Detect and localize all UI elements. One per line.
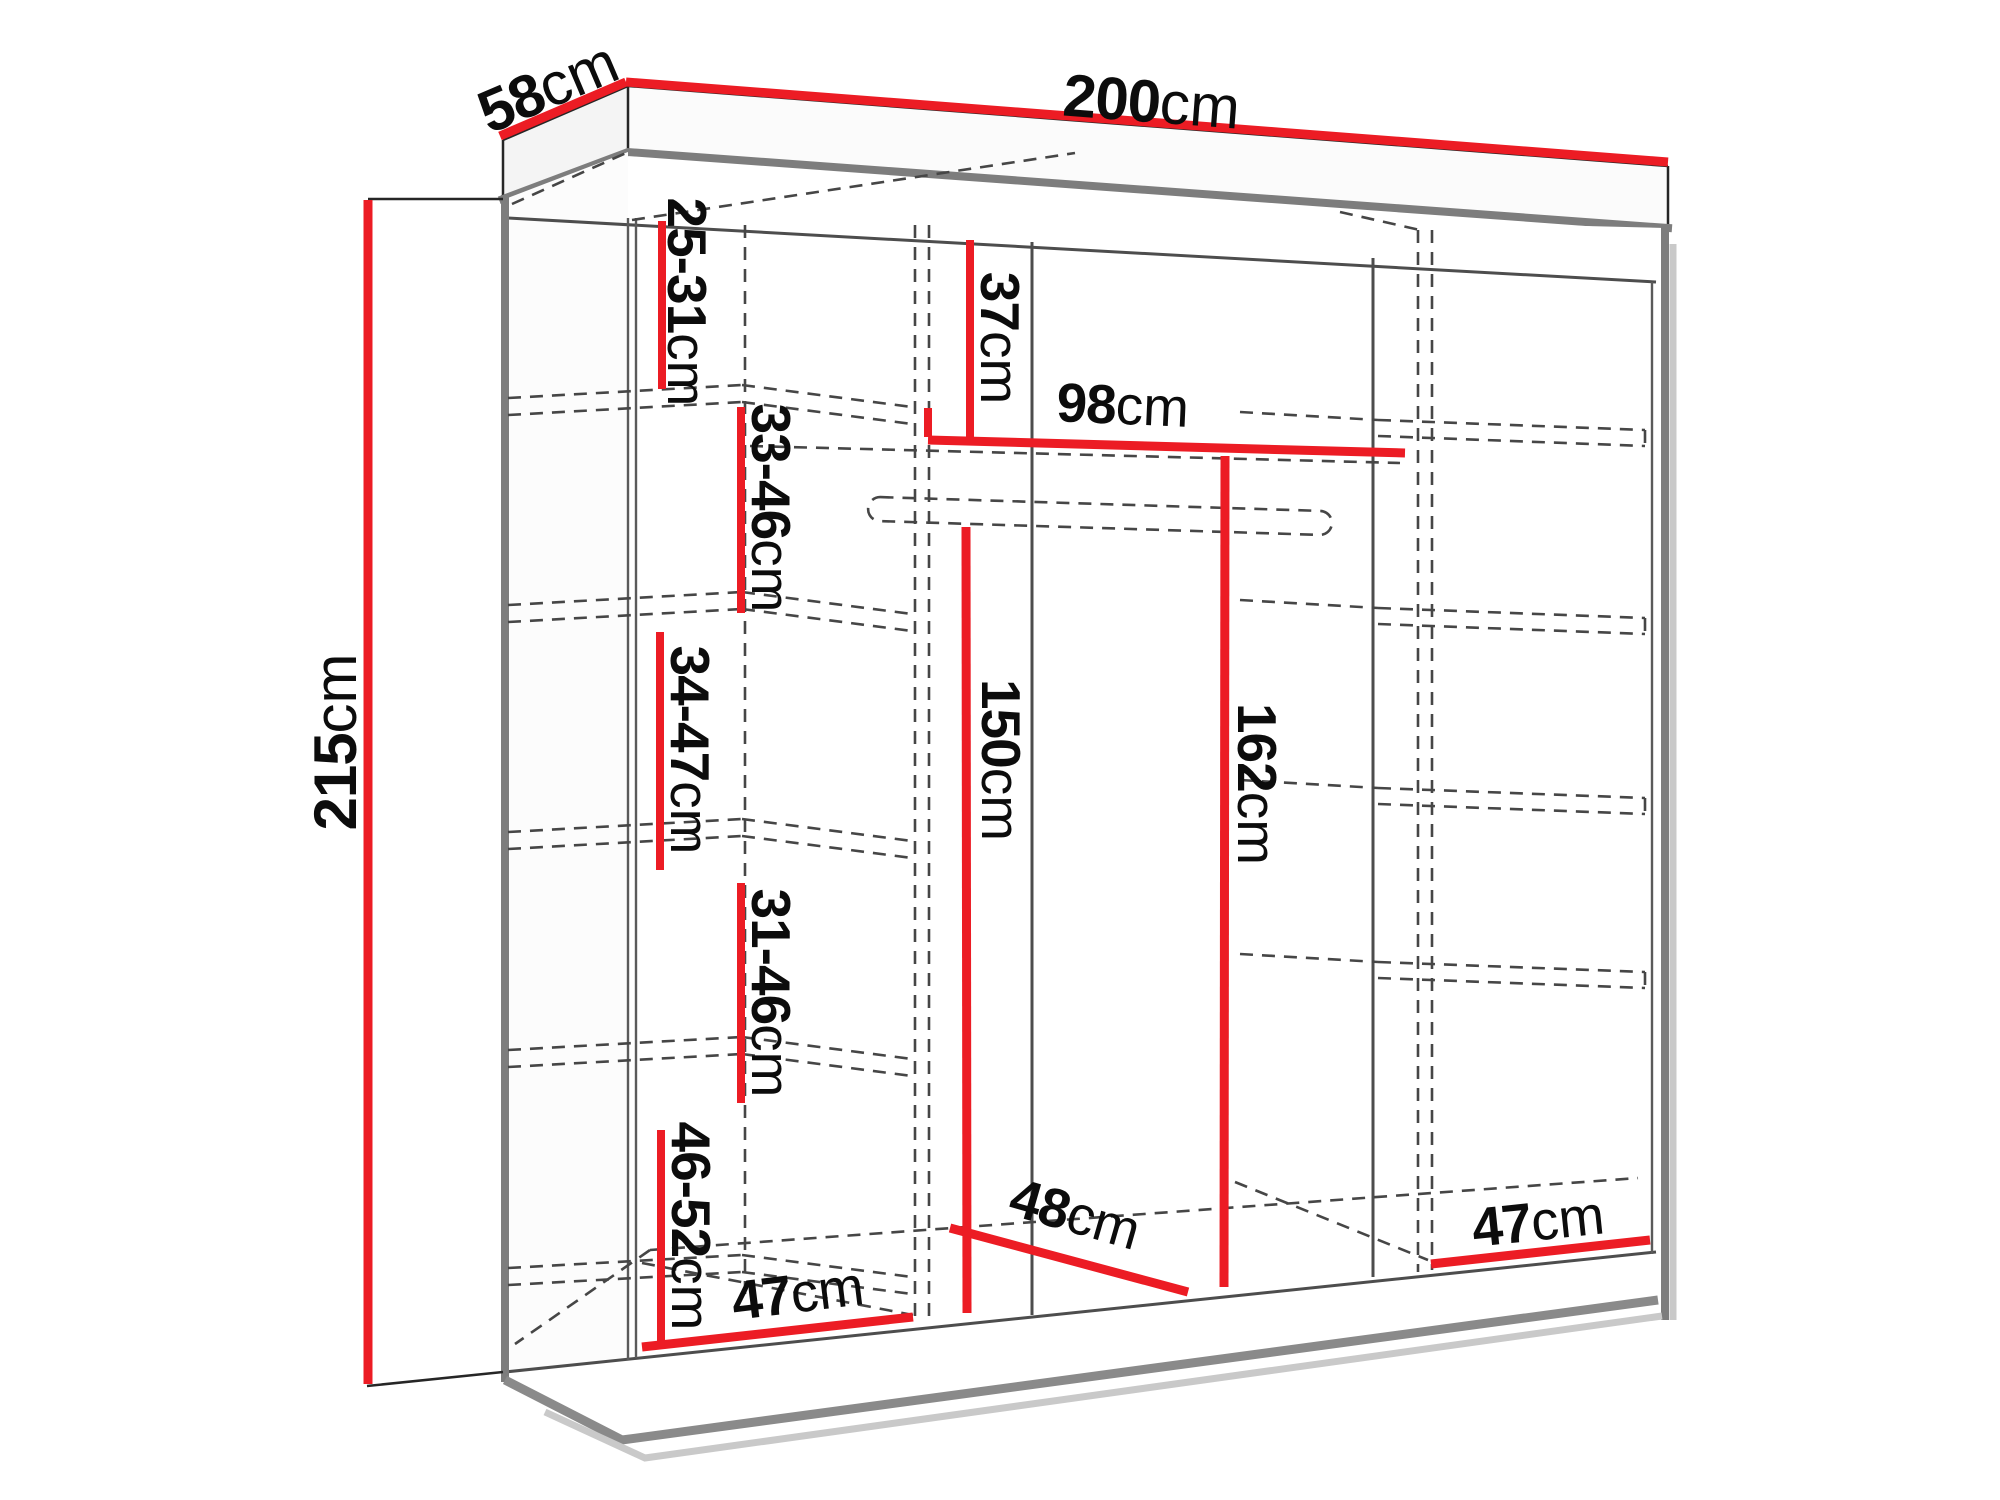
dimension-unit: cm xyxy=(1226,792,1288,865)
dimension-value: 47 xyxy=(728,1263,794,1332)
dimension-unit: cm xyxy=(970,768,1032,841)
dimension-value: 46-52 xyxy=(660,1122,722,1258)
dimension-value: 215 xyxy=(302,733,369,830)
dimension-gap-3: 34-47cm xyxy=(659,632,721,870)
dimension-label-gap-1: 25-31cm xyxy=(656,198,718,407)
dimension-line-hanging-left xyxy=(966,527,967,1313)
dimension-label-gap-3: 34-47cm xyxy=(659,646,721,855)
dimension-value: 200 xyxy=(1061,62,1163,136)
dimension-unit: cm xyxy=(659,781,721,854)
dimension-value: 31-46 xyxy=(740,889,802,1025)
dimension-unit: cm xyxy=(1528,1183,1607,1252)
dimension-unit: cm xyxy=(1158,69,1243,142)
height-extension-line-bottom xyxy=(367,1372,503,1386)
dimension-value: 47 xyxy=(1469,1191,1534,1259)
dimension-height: 215cm xyxy=(302,200,369,1384)
dimension-unit: cm xyxy=(656,333,718,406)
dimension-value: 33-46 xyxy=(740,404,802,540)
dimension-value: 150 xyxy=(970,679,1032,768)
dimension-unit: cm xyxy=(969,331,1031,404)
dimension-label-width: 200cm xyxy=(1061,62,1243,142)
left-side-band xyxy=(505,152,628,1372)
dimension-gap-1: 25-31cm xyxy=(656,198,718,407)
diagram-canvas: 58cm 200cm 215cm 25-31cm 33-46cm 34-47cm… xyxy=(0,0,2000,1500)
dimension-value: 37 xyxy=(969,272,1031,331)
dimension-label-gap-4: 31-46cm xyxy=(740,889,802,1098)
dimension-unit: cm xyxy=(660,1257,722,1330)
dimension-value: 25-31 xyxy=(656,198,718,334)
dimension-unit: cm xyxy=(1114,374,1190,439)
dimension-line-hanging-right xyxy=(1224,456,1225,1287)
dimension-gap-5: 46-52cm xyxy=(660,1122,722,1344)
dimension-value: 162 xyxy=(1226,703,1288,792)
dimension-value: 98 xyxy=(1055,371,1117,436)
dimension-unit: cm xyxy=(740,539,802,612)
dimension-unit: cm xyxy=(302,653,369,733)
wardrobe-dimension-diagram: 58cm 200cm 215cm 25-31cm 33-46cm 34-47cm… xyxy=(0,0,2000,1500)
dimension-unit: cm xyxy=(740,1024,802,1097)
dimension-label-gap-5: 46-52cm xyxy=(660,1122,722,1331)
dimension-gap-4: 31-46cm xyxy=(740,883,802,1103)
dimension-label-hanging-right: 162cm xyxy=(1226,703,1288,865)
dimension-label-middle-width: 98cm xyxy=(1055,371,1190,439)
dimension-label-height: 215cm xyxy=(302,653,369,830)
dimension-label-top-gap: 37cm xyxy=(969,272,1031,405)
dimension-label-gap-2: 33-46cm xyxy=(740,404,802,613)
dimension-unit: cm xyxy=(787,1254,867,1324)
dimension-value: 34-47 xyxy=(659,646,721,782)
dimension-label-hanging-left: 150cm xyxy=(970,679,1032,841)
dimension-gap-2: 33-46cm xyxy=(740,404,802,614)
